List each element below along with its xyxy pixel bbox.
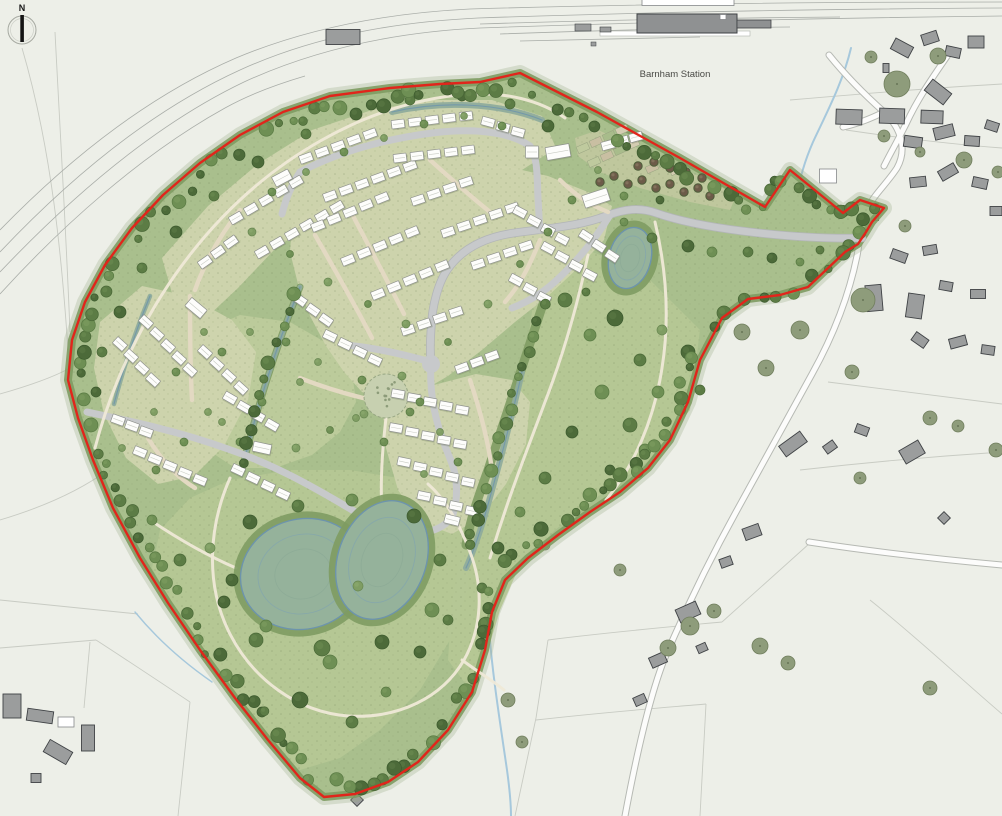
tree-icon [607, 310, 623, 326]
tree-icon [443, 615, 453, 625]
existing-tree-icon [923, 681, 937, 695]
tree-stem [870, 56, 872, 58]
building-footprint [883, 64, 889, 73]
tree-icon [292, 444, 300, 452]
tree-icon [568, 196, 576, 204]
tree-highlight [128, 506, 134, 512]
tree-highlight [81, 332, 86, 337]
tree-highlight [102, 287, 107, 292]
tree-stem [859, 477, 861, 479]
tree-highlight [163, 207, 167, 211]
tree-highlight [590, 122, 595, 127]
tree-icon [151, 409, 158, 416]
tree-icon [255, 390, 264, 399]
play-equipment-dot [387, 388, 390, 391]
tree-highlight [151, 553, 156, 558]
tree-icon [193, 622, 200, 629]
tree-icon [346, 716, 358, 728]
tree-highlight [245, 517, 251, 523]
tree-highlight [92, 388, 97, 393]
tree-highlight [293, 445, 297, 449]
existing-tree-icon [660, 640, 676, 656]
tree-highlight [116, 308, 121, 313]
tree-highlight [485, 588, 489, 592]
tree-highlight [356, 783, 362, 789]
tree-highlight [635, 163, 638, 166]
tree-icon [652, 386, 664, 398]
tree-icon [77, 369, 85, 377]
tree-highlight [568, 428, 573, 433]
tree-highlight [78, 370, 82, 374]
tree-icon [365, 301, 372, 308]
tree-highlight [352, 110, 357, 115]
tree-highlight [174, 197, 180, 203]
tree-highlight [653, 185, 656, 188]
tree-highlight [409, 511, 415, 517]
tree-highlight [162, 578, 168, 584]
tree-icon [484, 300, 492, 308]
tree-highlight [508, 390, 512, 394]
tree-highlight [437, 429, 440, 432]
tree-highlight [516, 374, 520, 378]
tree-icon [296, 753, 307, 764]
tree-icon [420, 120, 428, 128]
orchard-tree-icon [698, 174, 706, 182]
tree-highlight [348, 496, 353, 501]
tree-highlight [453, 88, 458, 93]
tree-highlight [554, 105, 559, 110]
tree-highlight [415, 92, 419, 96]
tree-highlight [346, 782, 351, 787]
tree-highlight [291, 118, 294, 121]
tree-highlight [667, 181, 670, 184]
tree-highlight [545, 229, 549, 233]
tree-icon [583, 488, 597, 502]
tree-highlight [663, 418, 667, 422]
tree-icon [160, 577, 172, 589]
tree-icon [461, 113, 468, 120]
tree-icon [451, 693, 462, 704]
tree-highlight [181, 439, 185, 443]
tree-icon [101, 286, 112, 297]
tree-icon [135, 235, 143, 243]
tree-highlight [126, 518, 131, 523]
tree-highlight [611, 173, 614, 176]
tree-icon [260, 620, 272, 632]
tree-highlight [482, 485, 487, 490]
tree-highlight [581, 502, 585, 506]
tree-icon [260, 707, 269, 716]
tree-stem [787, 662, 789, 664]
tree-stem [919, 151, 921, 153]
tree-highlight [657, 197, 661, 201]
existing-tree-icon [758, 360, 774, 376]
tree-icon [492, 542, 504, 554]
tree-highlight [241, 438, 247, 444]
tree-stem [741, 331, 743, 333]
tree-icon [261, 356, 275, 370]
tree-highlight [417, 399, 421, 403]
tree-highlight [315, 359, 318, 362]
outline-building [720, 15, 726, 20]
tree-highlight [335, 103, 341, 109]
tree-highlight [474, 515, 480, 521]
tree-icon [662, 417, 671, 426]
tree-highlight [500, 556, 506, 562]
tree-highlight [283, 339, 287, 343]
existing-tree-icon [516, 736, 528, 748]
tree-highlight [797, 259, 801, 263]
tree-stem [862, 299, 864, 301]
tree-icon [360, 410, 368, 418]
tree-highlight [494, 433, 499, 438]
tree-icon [299, 117, 308, 126]
junction-circle [422, 355, 440, 373]
tree-icon [248, 228, 256, 236]
tree-highlight [247, 426, 252, 431]
tree-highlight [621, 219, 625, 223]
tree-icon [656, 196, 664, 204]
tree-highlight [241, 460, 245, 464]
orchard-tree-icon [680, 188, 688, 196]
tree-highlight [378, 101, 384, 107]
tree-icon [425, 603, 439, 617]
tree-highlight [719, 308, 725, 314]
tree-highlight [654, 388, 659, 393]
tree-highlight [478, 584, 483, 589]
play-equipment-dot [383, 395, 386, 398]
tree-highlight [641, 450, 646, 455]
tree-stem [507, 699, 509, 701]
tree-highlight [216, 650, 222, 656]
building-footprint [836, 109, 863, 125]
tree-icon [323, 655, 337, 669]
tree-icon [515, 507, 525, 517]
tree-highlight [116, 496, 121, 501]
tree-highlight [302, 130, 307, 135]
tree-icon [319, 101, 329, 111]
tree-icon [528, 91, 535, 98]
tree-highlight [183, 609, 188, 614]
house [461, 145, 476, 157]
tree-highlight [444, 616, 449, 621]
tree-highlight [817, 247, 821, 251]
tree-highlight [477, 640, 482, 645]
tree-highlight [273, 730, 280, 737]
tree-highlight [743, 206, 747, 210]
tree-highlight [189, 188, 193, 192]
tree-icon [125, 517, 136, 528]
tree-icon [301, 129, 311, 139]
building-footprint [990, 207, 1002, 216]
tree-icon [566, 426, 578, 438]
existing-tree-icon [952, 420, 964, 432]
tree-highlight [197, 171, 201, 175]
tree-icon [507, 389, 515, 397]
tree-icon [579, 113, 588, 122]
tree-highlight [310, 104, 315, 109]
tree-icon [682, 240, 694, 252]
existing-tree-icon [989, 443, 1002, 457]
tree-highlight [636, 356, 641, 361]
tree-highlight [136, 236, 139, 239]
tree-icon [353, 415, 360, 422]
tree-icon [572, 508, 580, 516]
tree-icon [102, 459, 110, 467]
tree-stem [929, 687, 931, 689]
tree-highlight [361, 411, 365, 415]
tree-stem [883, 135, 885, 137]
tree-icon [508, 78, 517, 87]
tree-stem [995, 449, 997, 451]
tree-highlight [583, 289, 587, 293]
tree-icon [104, 271, 114, 281]
tree-highlight [381, 135, 384, 138]
tree-icon [218, 596, 230, 608]
tree-icon [651, 151, 659, 159]
tree-highlight [194, 636, 199, 641]
tree-icon [437, 720, 447, 730]
tree-highlight [219, 349, 223, 353]
tree-icon [623, 418, 637, 432]
tree-highlight [491, 85, 497, 91]
tree-icon [421, 471, 428, 478]
tree-highlight [541, 474, 546, 479]
tree-highlight [151, 409, 154, 412]
tree-icon [268, 188, 276, 196]
play-equipment-dot [376, 386, 379, 389]
station-annex [737, 20, 771, 28]
tree-highlight [710, 182, 716, 188]
outline-building [58, 717, 74, 727]
tree-icon [275, 119, 283, 127]
tree-icon [584, 329, 596, 341]
tree-highlight [261, 376, 265, 380]
tree-icon [94, 449, 104, 459]
house [393, 153, 408, 165]
tree-highlight [676, 406, 681, 411]
tree-icon [126, 504, 138, 516]
tree-icon [657, 325, 667, 335]
tree-highlight [517, 261, 520, 264]
tree-highlight [661, 431, 666, 436]
masterplan-map: Barnham Station [0, 0, 1002, 816]
tree-highlight [381, 439, 385, 443]
tree-icon [534, 522, 548, 536]
tree-icon [445, 339, 452, 346]
tree-icon [465, 540, 475, 550]
tree-icon [465, 529, 475, 539]
tree-icon [498, 122, 506, 130]
tree-icon [280, 322, 289, 331]
tree-highlight [239, 695, 244, 700]
tree-icon [493, 432, 505, 444]
tree-icon [454, 458, 462, 466]
tree-stem [759, 645, 761, 647]
tree-highlight [325, 279, 329, 283]
tree-icon [620, 218, 628, 226]
tree-stem [619, 569, 621, 571]
tree-icon [173, 585, 182, 594]
play-equipment-dot [386, 405, 389, 408]
tree-highlight [263, 358, 269, 364]
tree-highlight [250, 697, 255, 702]
tree-icon [514, 373, 522, 381]
tree-highlight [304, 776, 309, 781]
tree-stem [689, 625, 691, 627]
tree-highlight [421, 471, 424, 474]
tree-icon [172, 368, 180, 376]
tree-highlight [365, 301, 368, 304]
tree-highlight [250, 407, 255, 412]
tree-icon [97, 347, 107, 357]
tree-icon [152, 466, 160, 474]
orchard-tree-icon [652, 184, 660, 192]
tree-icon [542, 120, 554, 132]
tree-icon [472, 514, 485, 527]
tree-icon [539, 472, 551, 484]
tree-icon [660, 154, 674, 168]
tree-icon [416, 398, 424, 406]
tree-icon [150, 552, 161, 563]
tree-icon [540, 299, 550, 309]
tree-highlight [261, 708, 265, 712]
tree-highlight [393, 92, 399, 98]
tree-highlight [138, 264, 143, 269]
tree-icon [205, 543, 215, 553]
tree-icon [77, 393, 90, 406]
tree-icon [381, 687, 391, 697]
building-footprint [939, 280, 953, 291]
tree-highlight [573, 509, 577, 513]
play-equipment-dot [384, 399, 387, 402]
outline-building [642, 0, 734, 6]
tree-icon [105, 257, 119, 271]
tree-icon [414, 90, 423, 99]
tree-highlight [563, 516, 569, 522]
tree-highlight [466, 530, 470, 534]
tree-icon [84, 418, 98, 432]
tree-highlight [86, 420, 92, 426]
tree-highlight [650, 441, 656, 447]
tree-stem [904, 225, 906, 227]
tree-highlight [740, 295, 745, 300]
tree-highlight [148, 516, 153, 521]
tree-icon [493, 452, 502, 461]
tree-stem [896, 83, 898, 85]
tree-icon [640, 449, 650, 459]
tree-highlight [766, 185, 771, 190]
tree-icon [685, 352, 697, 364]
tree-icon [595, 167, 602, 174]
house [391, 119, 406, 131]
tree-icon [452, 86, 464, 98]
house [410, 151, 425, 163]
tree-icon [794, 183, 804, 193]
tree-icon [426, 736, 440, 750]
tree-icon [219, 419, 226, 426]
tree-icon [174, 554, 186, 566]
existing-tree-icon [734, 324, 750, 340]
tree-icon [287, 251, 294, 258]
tree-icon [162, 206, 171, 215]
tree-highlight [499, 123, 503, 127]
tree-highlight [455, 459, 459, 463]
tree-highlight [105, 272, 109, 276]
tree-icon [434, 554, 446, 566]
tree-highlight [103, 460, 107, 464]
tree-crown [992, 166, 1002, 178]
tree-highlight [256, 392, 260, 396]
tree-icon [680, 171, 694, 185]
tree-icon [333, 101, 347, 115]
tree-icon [659, 429, 670, 440]
tree-stem [929, 417, 931, 419]
station-label: Barnham Station [640, 69, 711, 80]
tree-icon [437, 429, 444, 436]
tree-highlight [768, 254, 773, 259]
tree-icon [743, 247, 753, 257]
tree-highlight [289, 289, 295, 295]
existing-tree-icon [878, 130, 890, 142]
tree-highlight [467, 541, 471, 545]
tree-icon [524, 347, 535, 358]
tree-highlight [566, 109, 570, 113]
tree-icon [623, 142, 631, 150]
tree-stem [713, 610, 715, 612]
tree-stem [521, 741, 523, 743]
building-footprint [971, 290, 986, 299]
tree-highlight [294, 694, 301, 701]
tree-icon [314, 640, 330, 656]
tree-highlight [736, 197, 740, 201]
tree-icon [287, 287, 301, 301]
tree-highlight [744, 248, 749, 253]
tree-icon [647, 233, 657, 243]
tree-highlight [359, 377, 363, 381]
tree-highlight [776, 177, 781, 182]
tree-icon [303, 169, 310, 176]
tree-highlight [625, 420, 631, 426]
tree-highlight [112, 485, 116, 489]
tree-highlight [480, 619, 487, 626]
tree-icon [249, 406, 261, 418]
tree-icon [272, 338, 281, 347]
building-footprint [981, 345, 995, 356]
house [427, 149, 442, 161]
tree-icon [86, 308, 99, 321]
existing-tree-icon [854, 472, 866, 484]
tree-highlight [382, 688, 387, 693]
tree-highlight [461, 113, 464, 116]
tree-highlight [174, 586, 178, 590]
tree-highlight [681, 189, 684, 192]
tree-highlight [87, 310, 93, 316]
tree-icon [375, 635, 389, 649]
tree-highlight [353, 415, 356, 418]
building-footprint [968, 36, 984, 48]
tree-icon [523, 542, 530, 549]
tree-icon [324, 278, 332, 286]
tree-highlight [506, 100, 511, 105]
tree-icon [239, 459, 248, 468]
building-footprint [922, 244, 937, 255]
tree-highlight [676, 378, 681, 383]
orchard-tree-icon [634, 162, 642, 170]
tree-highlight [526, 348, 531, 353]
tree-icon [816, 246, 824, 254]
tree-icon [648, 440, 660, 452]
